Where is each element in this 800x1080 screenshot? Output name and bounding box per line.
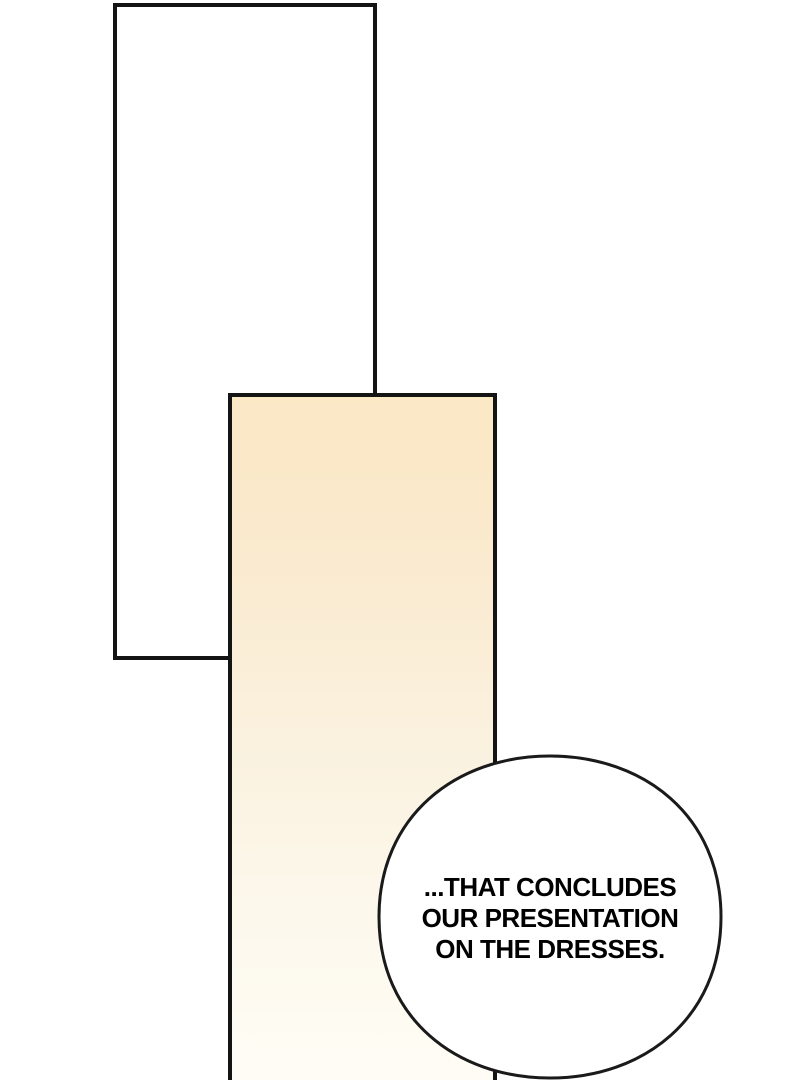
speech-bubble-text: ...THAT CONCLUDES OUR PRESENTATION ON TH… xyxy=(376,872,724,965)
speech-bubble-text-line: ON THE DRESSES. xyxy=(376,934,724,965)
comic-page: ...THAT CONCLUDES OUR PRESENTATION ON TH… xyxy=(0,0,800,1080)
speech-bubble-text-line: ...THAT CONCLUDES xyxy=(376,872,724,903)
speech-bubble-text-line: OUR PRESENTATION xyxy=(376,903,724,934)
speech-bubble: ...THAT CONCLUDES OUR PRESENTATION ON TH… xyxy=(376,754,724,1080)
